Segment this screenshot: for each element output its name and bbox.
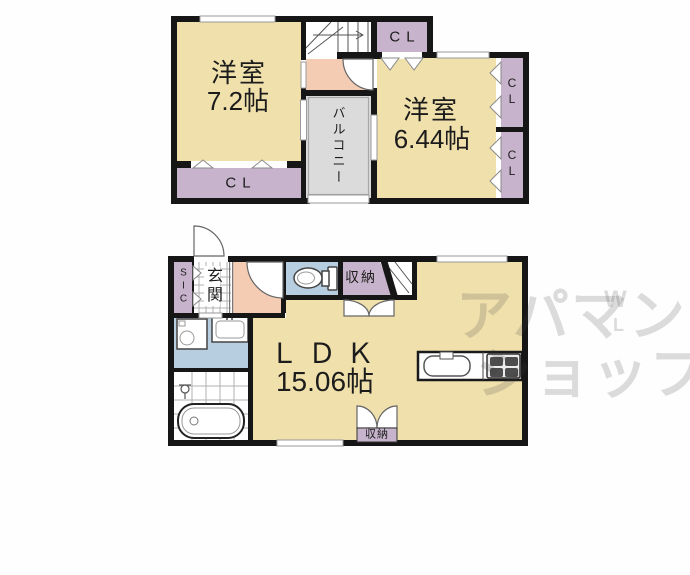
floorplan-canvas: 洋室 7.2帖 洋室 6.44帖 CL CL CL CL バルコニー SIC 玄… — [0, 0, 690, 575]
watermark-mark-w: W — [604, 288, 629, 312]
label-sic: SIC — [178, 268, 188, 307]
label-closet-east-lower: CL — [506, 148, 518, 180]
label-closet-east-upper: CL — [506, 76, 518, 108]
label-closet-west: CL — [225, 176, 256, 191]
label-room-west-name: 洋室 — [211, 60, 267, 86]
entrance-door — [194, 226, 224, 256]
label-ldk-name: ＬＤＫ — [270, 340, 384, 368]
label-ldk-area: 15.06帖 — [276, 368, 374, 396]
kitchen-faucet — [440, 352, 453, 359]
label-balcony: バルコニー — [332, 106, 345, 186]
watermark-line2: ショップ — [476, 346, 690, 402]
door-room-west — [301, 62, 306, 88]
label-room-east-name: 洋室 — [403, 97, 459, 123]
bathtub — [178, 404, 244, 438]
label-room-east-area: 6.44帖 — [394, 126, 471, 152]
watermark-line1: アパマン — [456, 288, 687, 344]
door-washroom — [199, 313, 222, 318]
window-balcony-west — [301, 100, 307, 140]
label-storage-south: 収納 — [365, 430, 389, 441]
window-balcony-east — [371, 115, 377, 160]
entrance-step-line — [229, 262, 230, 313]
washing-machine — [177, 319, 207, 349]
window-ldk-top — [437, 256, 507, 262]
toilet-fixture — [294, 267, 337, 290]
window-ldk-bottom — [277, 440, 343, 446]
window-room-west-top — [200, 16, 275, 22]
window-room-east-top — [437, 52, 489, 58]
label-closet-top: CL — [389, 30, 420, 45]
watermark-mark-l: L — [613, 316, 626, 334]
label-room-west-area: 7.2帖 — [207, 88, 269, 114]
label-entrance: 玄関 — [204, 266, 220, 306]
balcony-edge-rail — [308, 195, 369, 203]
label-storage-hall: 収納 — [345, 270, 377, 284]
